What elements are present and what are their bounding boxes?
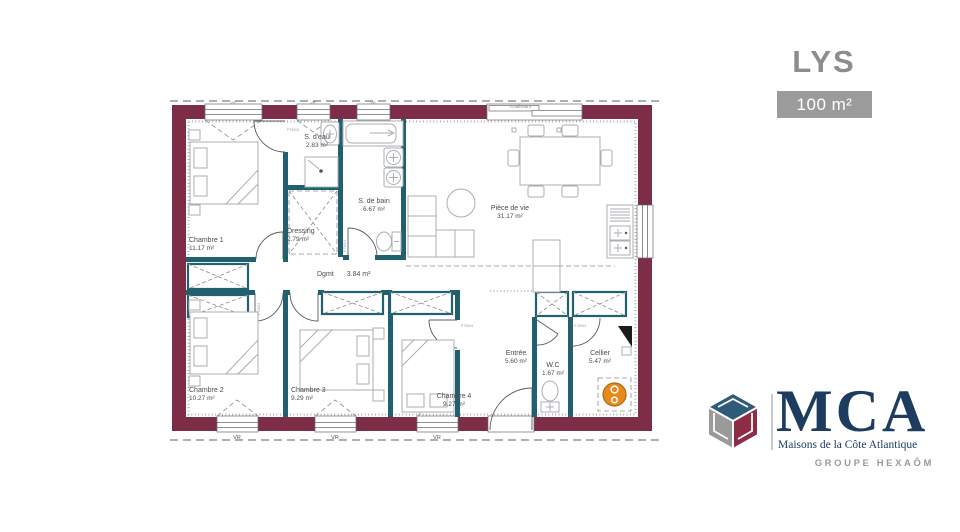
room-label-s-eau: S. d'eau 2.83 m² <box>294 133 340 151</box>
room-label-wc: W.C 1.67 m² <box>534 361 572 379</box>
sliding-bay-window <box>487 104 582 120</box>
mca-logo: MCA Maisons de la Côte Atlantique GROUPE… <box>698 388 938 483</box>
page: VR VR VR VR VR VR Coulissant P73004 P730… <box>0 0 960 532</box>
roller-shutter-label: VR <box>433 435 441 441</box>
mca-cube-icon <box>700 392 766 452</box>
room-label-chambre-2: Chambre 2 10.27 m² <box>189 386 224 404</box>
window <box>637 205 653 258</box>
door-ref-label: P73004 <box>257 303 261 315</box>
dimension-label: VR <box>230 100 236 105</box>
toilet-icon <box>541 381 559 412</box>
sliding-bay-label: Coulissant <box>510 104 532 109</box>
floor-plan-svg: VR VR VR VR VR VR Coulissant P73004 P730… <box>170 100 660 442</box>
door-ref-label: P73004 <box>287 128 299 132</box>
room-label-piece-de-vie: Pièce de vie 31.17 m² <box>468 204 552 222</box>
area-badge: 100 m² <box>777 91 872 118</box>
dimension-label: VR <box>370 100 376 105</box>
room-label-dgmt: Dgmt 3.84 m² <box>317 271 370 278</box>
washbasin-icon <box>384 148 403 187</box>
room-label-chambre-3: Chambre 3 9.29 m² <box>291 386 326 404</box>
bed-icon <box>189 130 258 215</box>
roller-shutter-label: VR <box>233 435 241 441</box>
mca-subtitle: Maisons de la Côte Atlantique <box>778 439 936 451</box>
logo-divider <box>771 394 773 450</box>
toilet-icon <box>377 232 402 251</box>
room-label-dressing: Dressing 2.79 m² <box>287 227 315 245</box>
dimension-label: VR <box>310 100 316 105</box>
model-title: LYS <box>770 44 878 80</box>
room-label-s-de-bain: S. de bain 6.67 m² <box>346 197 402 215</box>
room-label-chambre-1: Chambre 1 11.17 m² <box>189 236 224 254</box>
roller-shutter-label: VR <box>331 435 339 441</box>
door-ref-label: P73004 <box>343 240 347 252</box>
mca-acronym: MCA <box>776 381 928 441</box>
bed-icon <box>189 300 258 386</box>
floor-plan: VR VR VR VR VR VR Coulissant P73004 P730… <box>170 100 660 442</box>
door-ref-label: P73004 <box>574 324 586 328</box>
shower-icon <box>305 157 338 187</box>
room-label-chambre-4: Chambre 4 9.27 m² <box>423 392 485 410</box>
door-ref-label: P73004 <box>461 324 473 328</box>
mca-group-name: GROUPE HEXAÔM <box>778 458 934 469</box>
room-label-cellier: Cellier 5.47 m² <box>575 349 625 367</box>
room-label-entree: Entrée 5.60 m² <box>492 349 540 367</box>
bathtub-icon <box>343 121 403 146</box>
